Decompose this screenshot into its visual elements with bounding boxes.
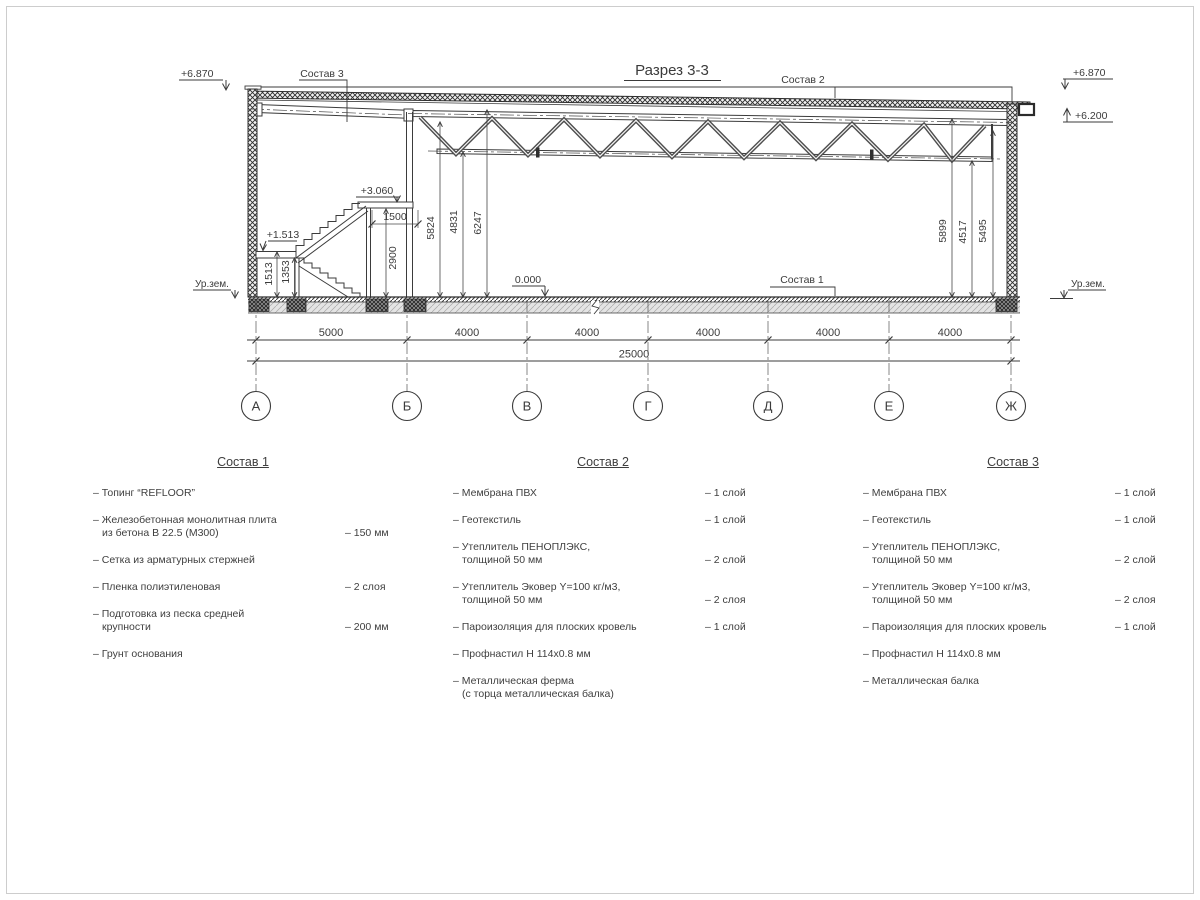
spec-column-2: Состав 2 – Мембрана ПВХ – 1 слой – Геоте…	[453, 455, 753, 715]
dim-6247: 6247	[472, 211, 484, 235]
axis-letter-b: Б	[403, 399, 412, 414]
axis-letter-e: Е	[885, 399, 894, 414]
spec-item: – Профнастил Н 114х0.8 мм	[863, 648, 1163, 661]
leader-sostav1-label: Состав 1	[780, 274, 824, 286]
spec-item: – Профнастил Н 114х0.8 мм	[453, 648, 753, 661]
spec-title-1: Состав 1	[93, 455, 393, 469]
leader-sostav1: Состав 1	[770, 274, 835, 296]
spec-item: – Мембрана ПВХ – 1 слой	[453, 487, 753, 500]
spec-item: – Грунт основания	[93, 648, 393, 661]
spec-item: – Металлическая балка	[863, 675, 1163, 688]
leader-sostav2-label: Состав 2	[781, 74, 825, 86]
axis-letter-g: Г	[644, 399, 651, 414]
dim-1353: 1353	[280, 260, 292, 284]
elevation-landing: +1.513	[260, 229, 299, 251]
lower-flight-steps	[296, 258, 360, 297]
spec-item: – Утеплитель ПЕНОПЛЭКС, толщиной 50 мм –…	[453, 541, 753, 567]
axis-letter-zh: Ж	[1005, 399, 1017, 414]
leader-sostav2: Состав 2	[781, 74, 835, 98]
ground-right-label: Ур.зем.	[1071, 279, 1105, 290]
span-dimension-line: 5000 4000 4000 4000 4000 4000	[247, 327, 1020, 340]
total-dimension-line: 25000	[247, 349, 1020, 362]
spec-item: – Подготовка из песка средней крупности …	[93, 608, 393, 634]
stair-landing	[256, 252, 296, 259]
upper-flight-steps	[296, 204, 360, 252]
axis-letter-v: В	[523, 399, 532, 414]
elevation-floor: 0.000	[512, 274, 549, 296]
elevation-mezzanine: +3.060	[356, 185, 401, 202]
span-dim-1: 4000	[455, 327, 479, 339]
elevation-right-top: +6.870	[1062, 67, 1114, 89]
span-dim-0: 5000	[319, 327, 343, 339]
spec-item: – Сетка из арматурных стержней	[93, 554, 393, 567]
steel-truss	[408, 111, 1012, 162]
roof-end-plate	[1019, 104, 1034, 115]
dim-2900: 2900	[387, 246, 399, 270]
spec-column-1: Состав 1 – Топинг “REFLOOR” – Железобето…	[93, 455, 393, 675]
spec-item: – Пленка полиэтиленовая – 2 слоя	[93, 581, 393, 594]
elev-floor-label: 0.000	[515, 274, 541, 286]
spec-title-3: Состав 3	[863, 455, 1163, 469]
spec-title-2: Состав 2	[453, 455, 753, 469]
right-wall	[1007, 104, 1017, 297]
spec-item: – Утеплитель ПЕНОПЛЭКС, толщиной 50 мм –…	[863, 541, 1163, 567]
axis-grid-lines	[256, 300, 1011, 391]
drawing-sheet: Разрез 3-3 Состав 3 Состав 2 Состав 1 +6…	[0, 0, 1200, 900]
spec-item: – Железобетонная монолитная плита из бет…	[93, 514, 393, 540]
ground-left-label: Ур.зем.	[195, 279, 229, 290]
floor-slab	[248, 297, 1073, 314]
ground-level-left: Ур.зем.	[193, 279, 239, 298]
total-dim: 25000	[619, 349, 650, 361]
span-dim-2: 4000	[575, 327, 599, 339]
dim-4831: 4831	[448, 210, 460, 234]
elev-left-top-label: +6.870	[181, 68, 214, 80]
spec-item: – Утеплитель Эковер Y=100 кг/м3, толщино…	[863, 581, 1163, 607]
stairwell-beam	[250, 103, 420, 121]
dim-5495: 5495	[977, 219, 989, 243]
axis-letter-d: Д	[764, 399, 773, 414]
dim-1500: 1500	[383, 211, 407, 223]
spec-item: – Топинг “REFLOOR”	[93, 487, 393, 500]
leader-sostav3-label: Состав 3	[300, 68, 344, 80]
span-dim-4: 4000	[816, 327, 840, 339]
spec-column-3: Состав 3 – Мембрана ПВХ – 1 слой – Геоте…	[863, 455, 1163, 702]
spec-item: – Геотекстиль – 1 слой	[863, 514, 1163, 527]
elev-landing-label: +1.513	[267, 229, 300, 241]
dim-5824: 5824	[425, 216, 437, 240]
elev-mezzanine-label: +3.060	[361, 185, 394, 197]
axis-letter-a: А	[252, 399, 261, 414]
spec-item: – Мембрана ПВХ – 1 слой	[863, 487, 1163, 500]
spec-item: – Пароизоляция для плоских кровель – 1 с…	[453, 621, 753, 634]
elev-right-top-label: +6.870	[1073, 67, 1106, 79]
dim-1513: 1513	[263, 262, 275, 286]
section-drawing: Разрез 3-3 Состав 3 Состав 2 Состав 1 +6…	[0, 0, 1200, 445]
elevation-right-low: +6.200	[1063, 109, 1113, 123]
left-wall	[248, 89, 257, 297]
spec-item: – Утеплитель Эковер Y=100 кг/м3, толщино…	[453, 581, 753, 607]
dim-4517: 4517	[957, 220, 969, 244]
span-dim-5: 4000	[938, 327, 962, 339]
elevation-left-top: +6.870	[179, 68, 230, 90]
ground-level-right: Ур.зем.	[1061, 279, 1107, 298]
elev-right-low-label: +6.200	[1075, 110, 1108, 122]
axis-bubbles	[242, 392, 1026, 421]
spec-item: – Металлическая ферма (с торца металличе…	[453, 675, 753, 701]
drawing-title: Разрез 3-3	[635, 62, 709, 79]
spec-item: – Пароизоляция для плоских кровель – 1 с…	[863, 621, 1163, 634]
spec-item: – Геотекстиль – 1 слой	[453, 514, 753, 527]
span-dim-3: 4000	[696, 327, 720, 339]
dim-5899: 5899	[937, 219, 949, 243]
dim-1500-group: 1500	[372, 210, 418, 228]
